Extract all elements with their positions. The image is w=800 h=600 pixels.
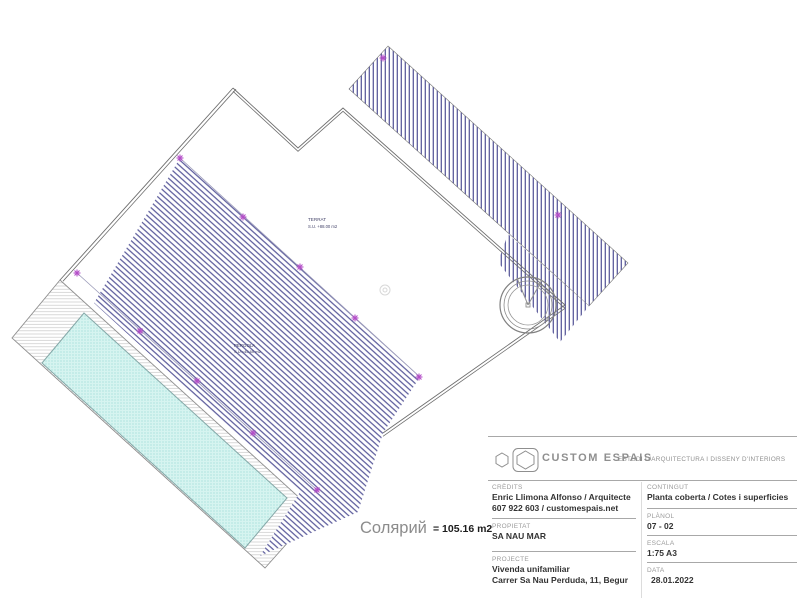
point-marker	[352, 315, 359, 322]
roof-drain-circle	[380, 285, 390, 295]
left-rule-1	[492, 518, 636, 519]
point-marker	[240, 214, 247, 221]
planol-label: PLÀNOL	[647, 513, 674, 520]
right-rule-2	[647, 535, 797, 536]
projecte-label: PROJECTE	[492, 556, 529, 563]
point-marker	[250, 430, 257, 437]
point-marker	[74, 270, 81, 277]
brand-tagline: ESTUDI D'ARQUITECTURA I DISSENY D'INTERI…	[618, 456, 785, 463]
projecte-line1: Vivenda unifamiliar	[492, 564, 570, 574]
data-label: DATA	[647, 567, 665, 574]
title-block: CUSTOM ESPAIS ESTUDI D'ARQUITECTURA I DI…	[488, 436, 799, 600]
terrat-area: S.U. +88.00 m2	[308, 224, 338, 229]
point-marker	[555, 212, 562, 219]
point-marker	[177, 155, 184, 162]
point-marker	[380, 55, 387, 62]
right-rule-3	[647, 562, 797, 563]
credits-label: CRÈDITS	[492, 484, 523, 491]
data-value: 28.01.2022	[651, 575, 694, 585]
point-marker	[194, 378, 201, 385]
terrat-label: TERRAT	[308, 217, 326, 222]
pergola-area: S.U.=45.60 m2	[234, 349, 262, 354]
projecte-line2: Carrer Sa Nau Perduda, 11, Begur	[492, 575, 628, 585]
contingut-value: Planta coberta / Cotes i superficies	[647, 492, 788, 502]
credits-line2: 607 922 603 / customespais.net	[492, 503, 618, 513]
solarium-value: = 105.16 m2	[433, 523, 492, 535]
right-rule-1	[647, 508, 797, 509]
hexagon-logo-icon	[494, 447, 540, 473]
point-marker	[416, 374, 423, 381]
propietat-label: PROPIETAT	[492, 523, 531, 530]
credits-line1: Enric Llimona Alfonso / Arquitecte	[492, 492, 631, 502]
escala-label: ESCALA	[647, 540, 674, 547]
propietat-value: SA NAU MAR	[492, 531, 546, 541]
left-rule-2	[492, 551, 636, 552]
planol-value: 07 - 02	[647, 521, 673, 531]
roof-slat-strip	[349, 46, 628, 342]
point-marker	[297, 264, 304, 271]
solarium-label: Солярий	[360, 519, 427, 537]
escala-value: 1:75 A3	[647, 548, 677, 558]
point-marker	[137, 328, 144, 335]
title-block-divider	[641, 482, 642, 598]
title-block-top-rule	[488, 436, 797, 437]
contingut-label: CONTINGUT	[647, 484, 688, 491]
pergola-label: PERGOLA	[234, 343, 255, 348]
point-marker	[314, 487, 321, 494]
title-block-rule-2	[488, 480, 797, 481]
drawing-sheet: TERRAT S.U. +88.00 m2 PERGOLA S.U.=45.60…	[0, 0, 800, 600]
